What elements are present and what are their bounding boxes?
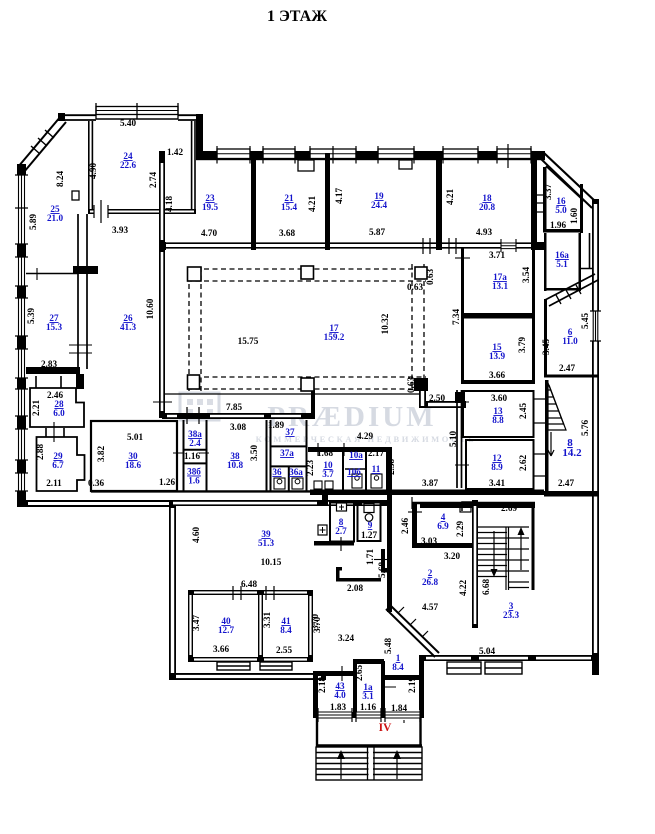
svg-text:2.55: 2.55 [276,645,292,655]
svg-text:4.93: 4.93 [476,227,492,237]
svg-text:11: 11 [372,464,381,474]
svg-text:3.82: 3.82 [96,446,106,462]
svg-text:3.47: 3.47 [191,615,201,631]
svg-text:2.23: 2.23 [305,460,315,476]
svg-text:5.68: 5.68 [377,562,387,578]
svg-text:5.0: 5.0 [555,205,567,215]
svg-text:2.19: 2.19 [407,677,417,693]
svg-text:5.40: 5.40 [120,118,136,128]
svg-text:15.4: 15.4 [281,202,297,212]
svg-text:11.0: 11.0 [562,336,578,346]
svg-text:10.60: 10.60 [145,298,155,319]
svg-text:3.71: 3.71 [489,250,505,260]
svg-text:1.89: 1.89 [268,420,284,430]
svg-text:1 ЭТАЖ: 1 ЭТАЖ [267,8,327,25]
svg-text:7.85: 7.85 [226,402,242,412]
svg-text:1.27: 1.27 [361,530,377,540]
svg-text:3.20: 3.20 [444,551,460,561]
svg-text:3.1: 3.1 [362,691,374,701]
svg-text:3.41: 3.41 [489,478,505,488]
svg-text:18.6: 18.6 [125,460,141,470]
svg-text:2.21: 2.21 [31,400,41,416]
svg-text:2.17: 2.17 [368,448,384,458]
svg-text:2.62: 2.62 [518,455,528,471]
svg-text:23.3: 23.3 [503,610,519,620]
svg-text:19.5: 19.5 [202,202,218,212]
svg-text:1.68: 1.68 [317,448,333,458]
svg-text:13.1: 13.1 [492,281,508,291]
svg-text:4.0: 4.0 [334,690,346,700]
svg-text:5.87: 5.87 [369,227,385,237]
svg-text:6.68: 6.68 [481,579,491,595]
svg-text:3.68: 3.68 [279,228,295,238]
svg-text:1.16: 1.16 [360,702,376,712]
svg-text:4.17: 4.17 [334,188,344,204]
svg-text:3.08: 3.08 [230,422,246,432]
svg-text:41.3: 41.3 [120,322,136,332]
svg-text:13.9: 13.9 [489,351,505,361]
svg-text:14.2: 14.2 [562,447,582,459]
svg-text:5.76: 5.76 [580,420,590,436]
svg-text:1.96: 1.96 [550,220,566,230]
svg-text:2.47: 2.47 [558,478,574,488]
svg-text:2.47: 2.47 [559,363,575,373]
svg-text:10.15: 10.15 [261,557,282,567]
svg-text:2.50: 2.50 [429,393,445,403]
svg-text:3.93: 3.93 [112,225,128,235]
svg-text:10б: 10б [347,467,361,477]
svg-text:5.1: 5.1 [556,259,568,269]
svg-text:1.42: 1.42 [167,147,183,157]
svg-text:3.66: 3.66 [213,644,229,654]
svg-text:3.7: 3.7 [322,469,334,479]
svg-text:3.79: 3.79 [517,337,527,353]
svg-text:0.63: 0.63 [425,269,435,285]
svg-text:4.90: 4.90 [88,163,98,179]
svg-text:1.26: 1.26 [159,477,175,487]
svg-text:10.8: 10.8 [227,460,243,470]
svg-text:3.70: 3.70 [310,614,320,630]
svg-text:2.4: 2.4 [189,438,201,448]
svg-text:4.29: 4.29 [357,431,373,441]
svg-text:1.71: 1.71 [365,549,375,565]
svg-text:2.83: 2.83 [41,359,57,369]
svg-text:6.0: 6.0 [53,408,65,418]
svg-text:3.03: 3.03 [421,536,437,546]
svg-text:10а: 10а [349,450,363,460]
svg-text:3.54: 3.54 [521,267,531,283]
svg-text:3.31: 3.31 [262,612,272,628]
svg-text:7.34: 7.34 [451,309,461,325]
svg-text:8.4: 8.4 [392,662,404,672]
svg-text:4.57: 4.57 [422,602,438,612]
svg-text:37а: 37а [280,448,294,458]
svg-text:2.38: 2.38 [386,459,396,475]
svg-text:15.3: 15.3 [46,322,62,332]
svg-text:3.66: 3.66 [489,370,505,380]
svg-text:4.21: 4.21 [307,196,317,212]
svg-text:4.70: 4.70 [201,228,217,238]
svg-text:2.74: 2.74 [148,172,158,188]
svg-text:6.9: 6.9 [437,521,449,531]
svg-text:1.16: 1.16 [184,451,200,461]
svg-text:5.10: 5.10 [448,431,458,447]
svg-text:4.22: 4.22 [458,580,468,596]
svg-text:2.18: 2.18 [317,677,327,693]
svg-text:20.8: 20.8 [479,202,495,212]
svg-text:3.50: 3.50 [249,445,259,461]
svg-text:51.3: 51.3 [258,538,274,548]
svg-text:9: 9 [368,520,373,530]
svg-text:3.24: 3.24 [338,633,354,643]
svg-text:2.11: 2.11 [46,478,62,488]
svg-text:2.88: 2.88 [35,444,45,460]
svg-text:21.0: 21.0 [47,213,63,223]
svg-text:0.63: 0.63 [407,282,423,292]
svg-text:0.36: 0.36 [88,478,104,488]
svg-text:8.24: 8.24 [55,171,65,187]
svg-text:24.4: 24.4 [371,200,387,210]
svg-text:2.69: 2.69 [501,503,517,513]
svg-text:5.39: 5.39 [26,308,36,324]
svg-text:10.32: 10.32 [380,313,390,334]
svg-text:3.37: 3.37 [543,184,553,200]
svg-text:2.46: 2.46 [400,518,410,534]
svg-text:26.8: 26.8 [422,577,438,587]
svg-text:2.65: 2.65 [354,665,364,681]
svg-text:IV: IV [379,722,392,734]
svg-text:4.21: 4.21 [445,189,455,205]
svg-text:5.89: 5.89 [28,214,38,230]
svg-text:8.8: 8.8 [492,415,504,425]
svg-text:1.84: 1.84 [391,703,407,713]
svg-text:5.45: 5.45 [580,313,590,329]
svg-text:2.7: 2.7 [335,526,347,536]
svg-text:3.60: 3.60 [491,393,507,403]
svg-text:159.2: 159.2 [324,332,345,342]
svg-text:2.45: 2.45 [518,403,528,419]
svg-text:37: 37 [285,427,295,437]
svg-text:6.7: 6.7 [52,460,64,470]
svg-text:8.9: 8.9 [491,462,503,472]
svg-text:22.6: 22.6 [120,160,136,170]
svg-text:2.08: 2.08 [347,583,363,593]
svg-text:5.01: 5.01 [127,432,143,442]
svg-text:1.83: 1.83 [330,702,346,712]
svg-text:2.29: 2.29 [455,521,465,537]
svg-text:0.63: 0.63 [406,377,416,393]
svg-text:6.48: 6.48 [241,579,257,589]
svg-text:12.7: 12.7 [218,625,234,635]
svg-text:4.60: 4.60 [191,527,201,543]
svg-text:1.6: 1.6 [188,476,200,486]
svg-text:8.4: 8.4 [280,625,292,635]
svg-text:4.18: 4.18 [164,196,174,212]
svg-text:15.75: 15.75 [238,336,259,346]
svg-text:36: 36 [272,467,282,477]
svg-text:5.48: 5.48 [383,638,393,654]
svg-text:1.60: 1.60 [569,208,579,224]
svg-text:5.04: 5.04 [479,646,495,656]
svg-text:36а: 36а [289,467,303,477]
svg-text:3.45: 3.45 [541,339,551,355]
svg-text:3.87: 3.87 [422,478,438,488]
